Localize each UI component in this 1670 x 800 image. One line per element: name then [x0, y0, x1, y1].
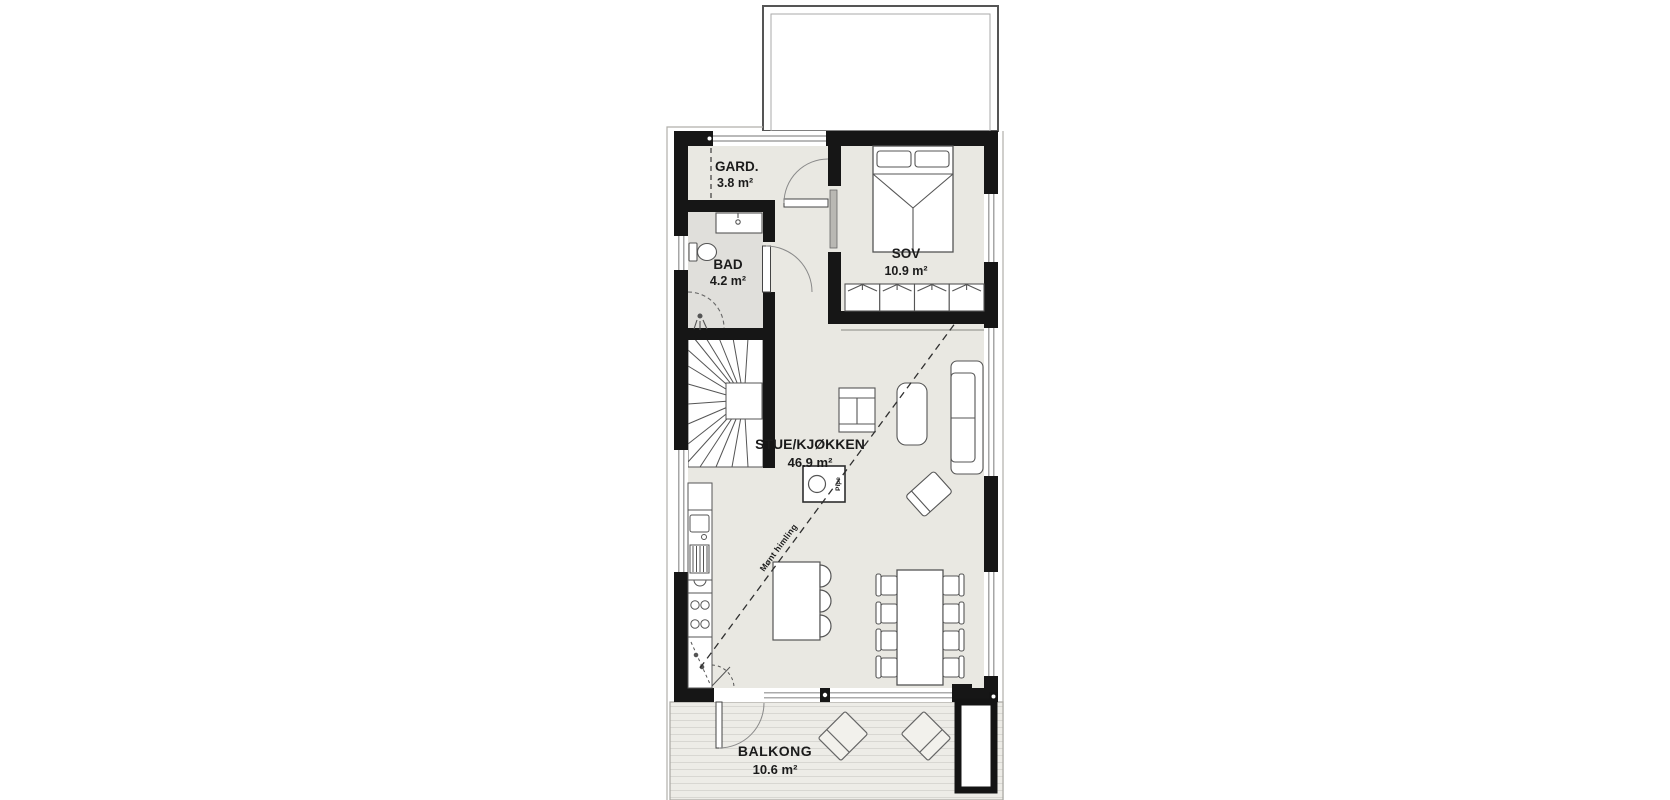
dining-chair [876, 656, 897, 678]
sliding-door-bedroom [830, 190, 837, 248]
window-top [706, 131, 826, 146]
kitchen-island [773, 562, 831, 640]
dining-chair [943, 656, 964, 678]
room-area-gard: 3.8 m² [717, 176, 753, 190]
dining-chair [876, 629, 897, 651]
dining-chair [876, 574, 897, 596]
stair-newel [726, 383, 762, 419]
dining-table [897, 570, 943, 685]
upper-terrace-outline [763, 6, 998, 131]
dining-chair [943, 574, 964, 596]
chimney-box: Pipe [803, 466, 845, 502]
window-left-bath [674, 236, 688, 270]
floor-plan: Pipe [0, 0, 1670, 800]
window-right-dining [984, 572, 998, 676]
window-bottom [764, 688, 952, 702]
tv-bench [839, 388, 875, 432]
sofa [951, 361, 983, 474]
room-area-bad: 4.2 m² [710, 274, 746, 288]
window-right-living [984, 328, 998, 476]
room-area-sov: 10.9 m² [884, 264, 927, 278]
balcony-door-opening [714, 688, 764, 702]
dining-chair [943, 629, 964, 651]
room-area-balkong: 10.6 m² [753, 762, 798, 777]
wardrobe [845, 284, 984, 311]
double-bed [873, 146, 953, 252]
window-left-kitchen [674, 450, 688, 572]
room-label-balkong: BALKONG [738, 743, 812, 759]
room-area-stue: 46.9 m² [788, 455, 833, 470]
room-label-stue: STUE/KJØKKEN [755, 436, 865, 452]
outdoor-storage [958, 692, 998, 790]
staircase [688, 338, 763, 467]
room-label-gard: GARD. [715, 159, 759, 174]
toilet [689, 243, 717, 261]
dining-chair [876, 602, 897, 624]
chaise [897, 383, 927, 445]
dining-chair [943, 602, 964, 624]
floor-plan-page: Pipe [0, 0, 1670, 800]
room-label-bad: BAD [713, 257, 742, 272]
room-label-sov: SOV [892, 246, 921, 261]
window-right-bedroom [984, 194, 998, 262]
washbasin [716, 213, 762, 233]
